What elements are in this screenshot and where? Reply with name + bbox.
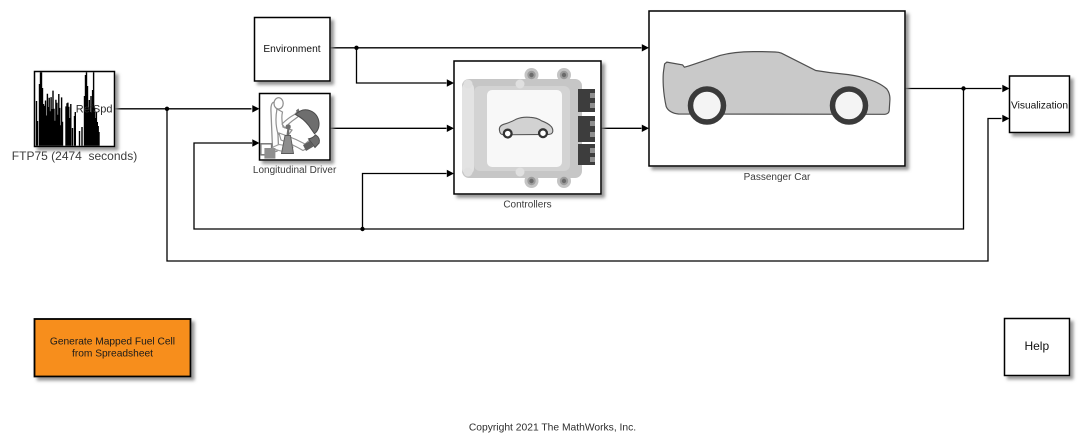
svg-text:Help: Help (1024, 339, 1049, 353)
svg-text:from Spreadsheet: from Spreadsheet (72, 349, 153, 360)
svg-text:Environment: Environment (263, 44, 320, 55)
svg-text:FTP75 (2474 seconds): FTP75 (2474 seconds) (12, 149, 137, 163)
svg-text:Generate Mapped Fuel Cell: Generate Mapped Fuel Cell (50, 337, 175, 348)
svg-text:Longitudinal Driver: Longitudinal Driver (253, 165, 337, 176)
svg-text:Controllers: Controllers (503, 200, 551, 211)
svg-text:Visualization: Visualization (1011, 100, 1068, 111)
svg-text:Passenger Car: Passenger Car (744, 172, 811, 183)
svg-text:RefSpd: RefSpd (76, 104, 113, 116)
svg-text:Copyright 2021 The MathWorks,: Copyright 2021 The MathWorks, Inc. (469, 423, 636, 434)
